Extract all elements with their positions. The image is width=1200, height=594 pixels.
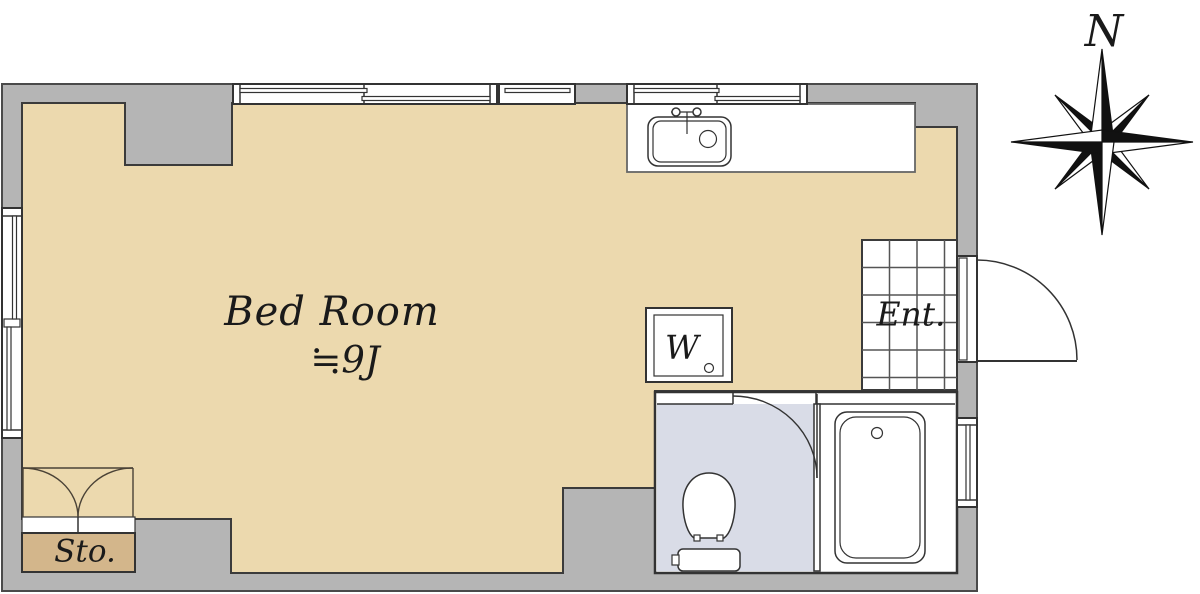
window-top-2 xyxy=(499,84,575,104)
bedroom-size-label: ≒9J xyxy=(310,342,379,379)
entry-swing-door xyxy=(957,256,1077,362)
bathtub xyxy=(835,412,925,563)
window-top-1 xyxy=(233,84,497,104)
compass-rose-icon xyxy=(1011,49,1193,235)
window-kitchen xyxy=(627,84,807,104)
toilet-room-floor xyxy=(657,404,815,571)
window-right xyxy=(957,418,977,507)
entrance-label: Ent. xyxy=(876,298,945,331)
washer-label: W xyxy=(665,331,699,364)
kitchen-sink xyxy=(648,108,731,166)
bedroom-label: Bed Room xyxy=(224,292,440,332)
floor-plan-drawing xyxy=(0,0,1200,594)
floor-plan: Bed Room ≒9J Ent. Sto. W N xyxy=(0,0,1200,594)
storage-label: Sto. xyxy=(54,537,116,568)
window-left xyxy=(2,208,22,438)
compass-north-label: N xyxy=(1085,10,1124,54)
kitchen-counter xyxy=(627,104,915,172)
wet-area xyxy=(655,392,957,573)
